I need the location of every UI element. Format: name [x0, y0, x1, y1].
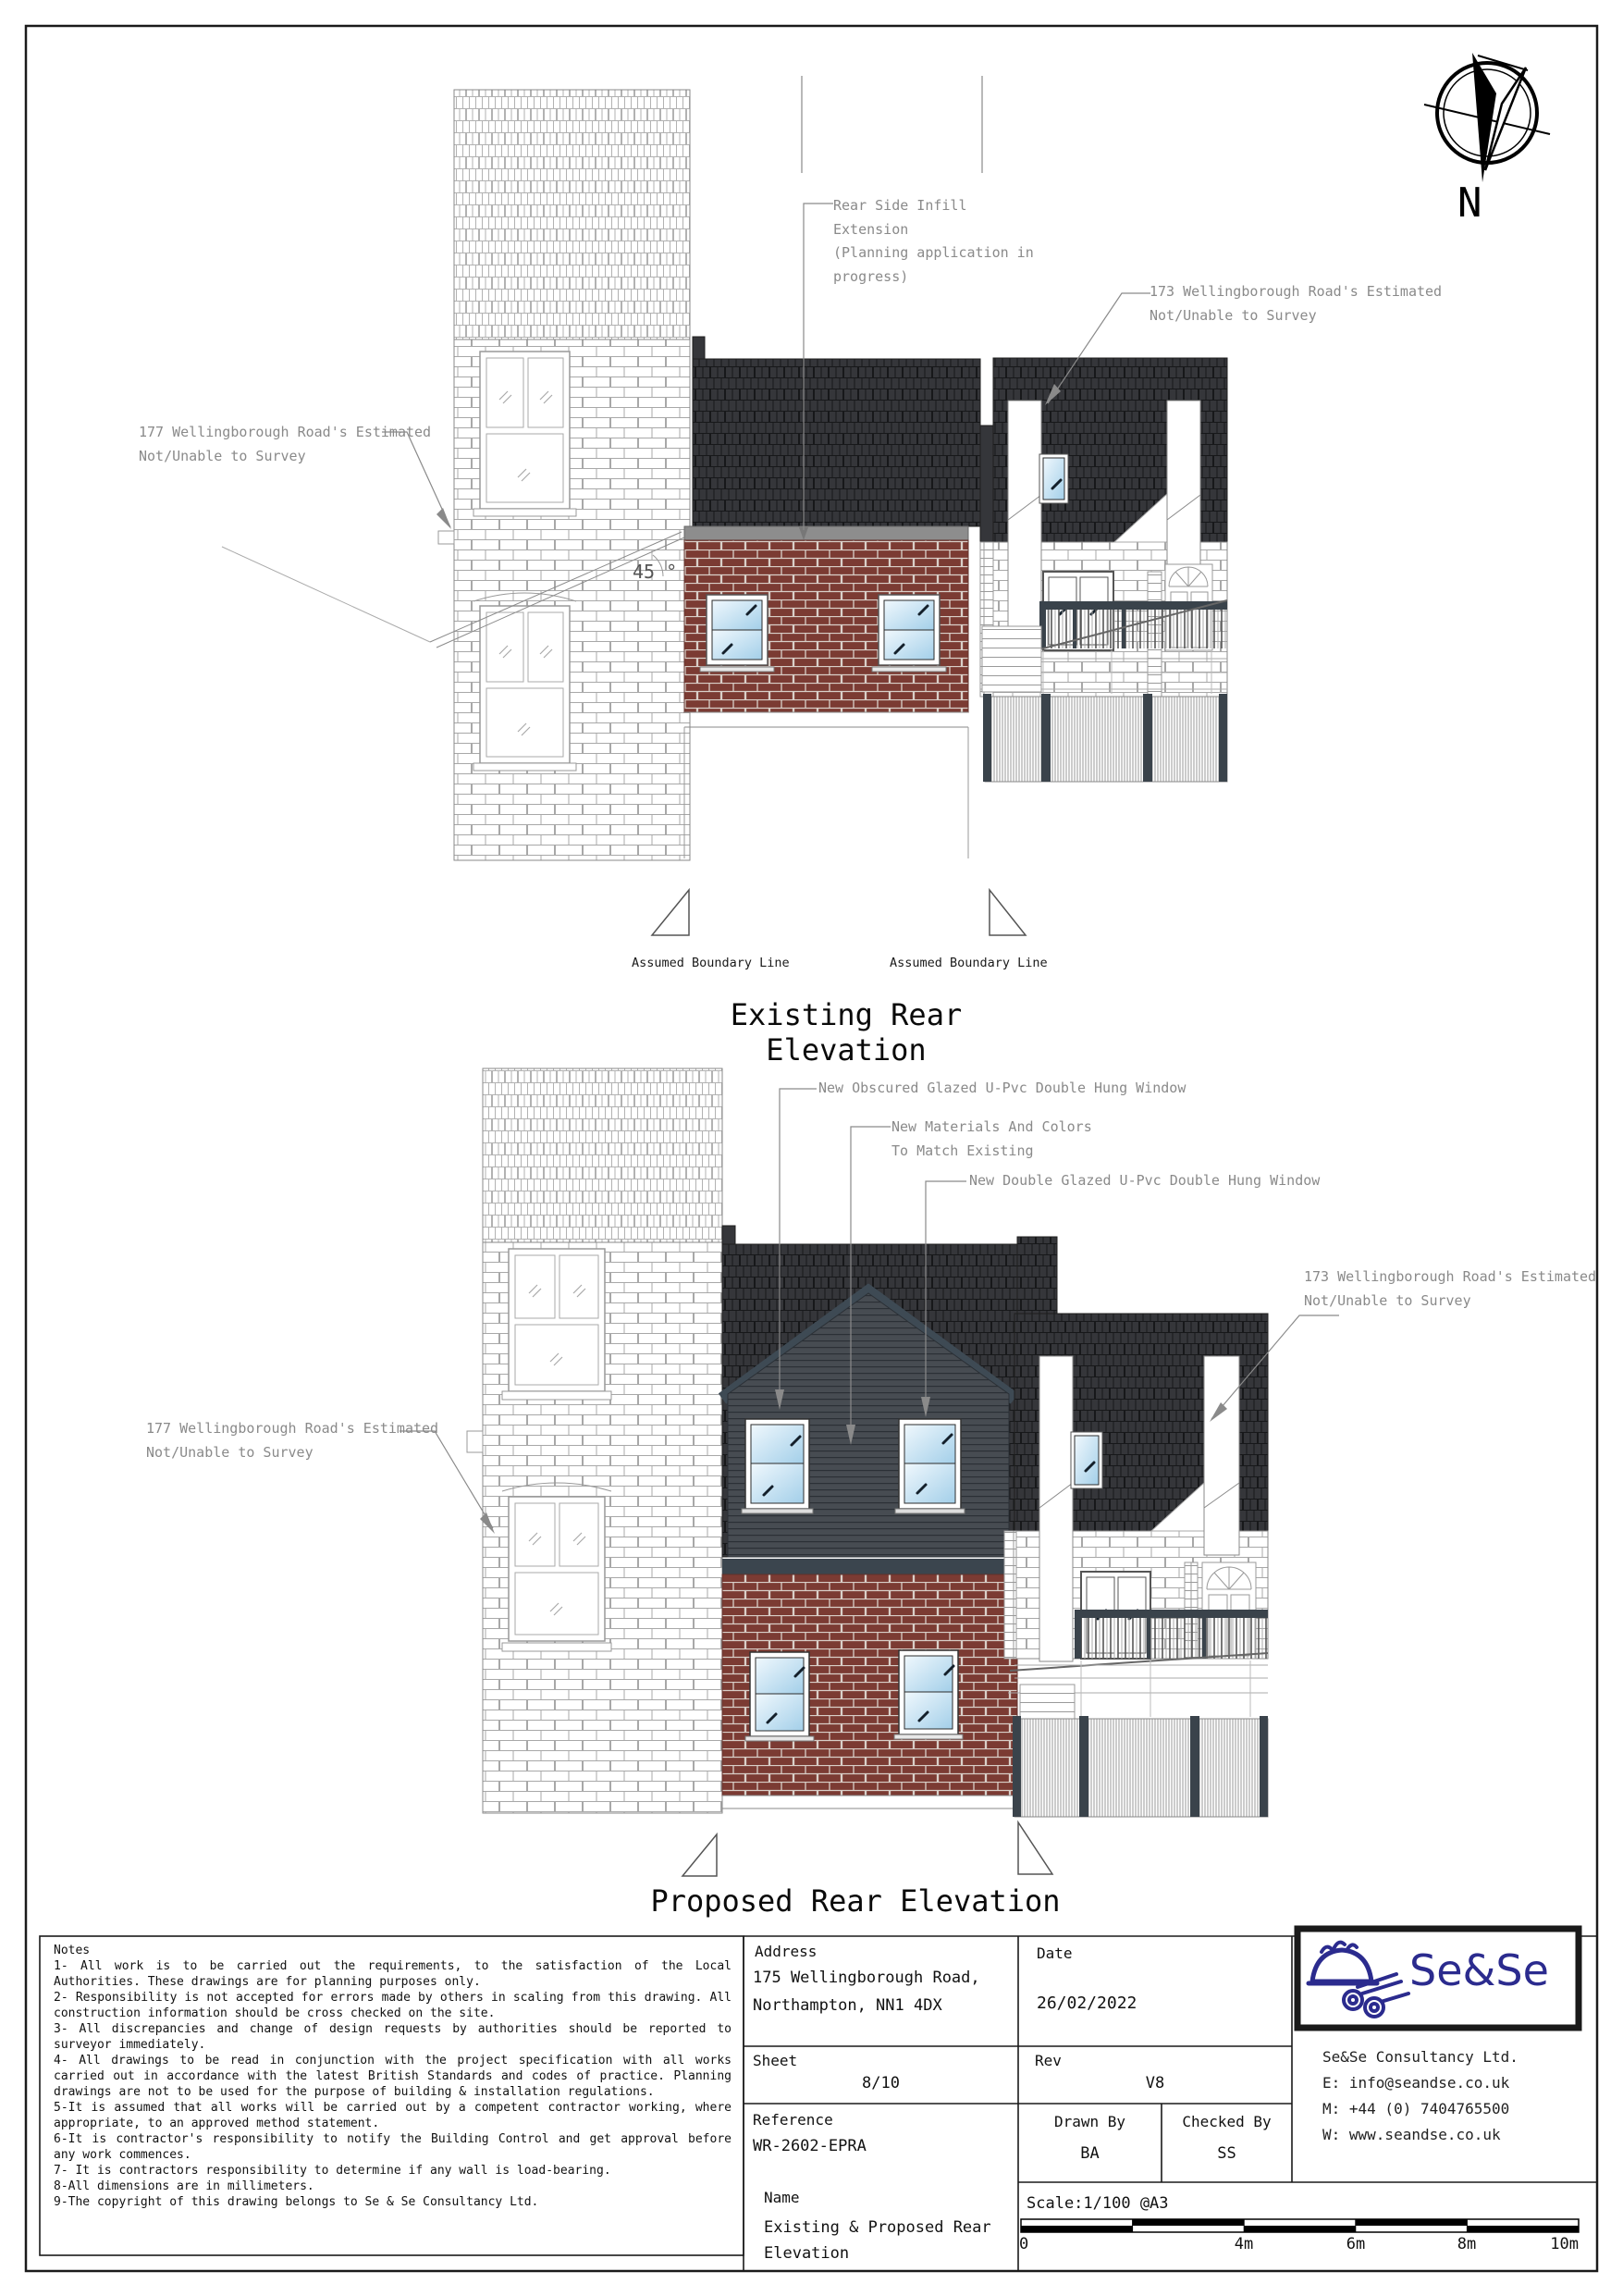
- checked-by-label: Checked By: [1162, 2113, 1292, 2130]
- scale-tick-8m: 8m: [1457, 2235, 1476, 2253]
- existing-elevation-drawing: [222, 76, 1227, 935]
- note-item: 1- All work is to be carried out the req…: [54, 1958, 732, 1990]
- drawn-by-label: Drawn By: [1018, 2113, 1162, 2130]
- existing-elevation-title: Existing Rear Elevation: [643, 997, 1050, 1068]
- proposed-boundary-markers: [682, 1822, 1052, 1876]
- existing-neighbour-177-building: [438, 90, 690, 860]
- annotation-proposed-173: 173 Wellingborough Road's Estimated Not/…: [1304, 1265, 1596, 1313]
- note-item: 4- All drawings to be read in conjunctio…: [54, 2053, 732, 2100]
- note-item: 6-It is contractor's responsibility to n…: [54, 2131, 732, 2163]
- boundary-label-right: Assumed Boundary Line: [890, 953, 1048, 974]
- drawn-by-value: BA: [1018, 2144, 1162, 2163]
- rev-label: Rev: [1035, 2052, 1062, 2069]
- note-item: 8-All dimensions are in millimeters.: [54, 2179, 732, 2194]
- name-value: Existing & Proposed Rear Elevation: [764, 2215, 991, 2266]
- address-line2: Northampton, NN1 4DX: [753, 1996, 942, 2015]
- notes-panel: Notes 1- All work is to be carried out t…: [54, 1943, 732, 2210]
- date-value: 26/02/2022: [1037, 1994, 1137, 2014]
- reference-label: Reference: [753, 2111, 833, 2129]
- address-line1: 175 Wellingborough Road,: [753, 1969, 980, 1987]
- proposed-elevation-title: Proposed Rear Elevation: [638, 1883, 1073, 1919]
- existing-boundary-markers: [652, 890, 1026, 935]
- note-item: 9-The copyright of this drawing belongs …: [54, 2194, 732, 2210]
- reference-value: WR-2602-EPRA: [753, 2137, 867, 2155]
- company-email: E: info@seandse.co.uk: [1322, 2074, 1509, 2092]
- proposed-neighbour-173-building: [1004, 1237, 1268, 1817]
- proposed-neighbour-177-building: [467, 1068, 722, 1813]
- note-item: 5-It is assumed that all works will be c…: [54, 2100, 732, 2131]
- company-mobile: M: +44 (0) 7404765500: [1322, 2100, 1509, 2117]
- note-item: 7- It is contractors responsibility to d…: [54, 2163, 732, 2179]
- scale-tick-6m: 6m: [1346, 2235, 1365, 2253]
- annotation-existing-173: 173 Wellingborough Road's Estimated Not/…: [1150, 280, 1442, 327]
- date-label: Date: [1037, 1944, 1073, 1962]
- annotation-new-glazed-window: New Double Glazed U-Pvc Double Hung Wind…: [969, 1169, 1524, 1193]
- note-item: 3- All discrepancies and change of desig…: [54, 2021, 732, 2053]
- existing-neighbour-173-building: [980, 358, 1227, 782]
- notes-heading: Notes: [54, 1943, 732, 1958]
- drawing-sheet: N Rear Side Infill Extension (Planning a…: [0, 0, 1623, 2296]
- annotation-new-materials: New Materials And Colors To Match Existi…: [891, 1116, 1169, 1163]
- company-name: Se&Se Consultancy Ltd.: [1322, 2048, 1518, 2066]
- scale-label: Scale:1/100 @A3: [1027, 2194, 1169, 2213]
- proposed-house-175-building: [722, 1226, 1017, 1808]
- annotation-new-obscured-window: New Obscured Glazed U-Pvc Double Hung Wi…: [818, 1077, 1373, 1101]
- sese-logo-text: Se&Se: [1409, 1945, 1549, 1995]
- north-label: N: [1457, 179, 1482, 227]
- annotation-45-degree: 45 °: [633, 556, 677, 587]
- address-label: Address: [755, 1943, 817, 1960]
- sheet-label: Sheet: [753, 2052, 797, 2069]
- annotation-proposed-177: 177 Wellingborough Road's Estimated Not/…: [146, 1417, 438, 1464]
- name-label: Name: [764, 2189, 800, 2206]
- sheet-value: 8/10: [744, 2074, 1018, 2092]
- scale-tick-4m: 4m: [1235, 2235, 1253, 2253]
- checked-by-value: SS: [1162, 2144, 1292, 2163]
- scale-tick-0: 0: [1019, 2235, 1028, 2253]
- annotation-existing-177: 177 Wellingborough Road's Estimated Not/…: [139, 421, 431, 468]
- scale-tick-10m: 10m: [1550, 2235, 1579, 2253]
- north-compass-icon: [1424, 53, 1550, 182]
- scale-bar: [1021, 2219, 1579, 2232]
- company-web: W: www.seandse.co.uk: [1322, 2126, 1501, 2143]
- boundary-label-left: Assumed Boundary Line: [632, 953, 790, 974]
- rev-value: V8: [1018, 2074, 1292, 2092]
- note-item: 2- Responsibility is not accepted for er…: [54, 1990, 732, 2021]
- annotation-infill-extension: Rear Side Infill Extension (Planning app…: [833, 194, 1037, 289]
